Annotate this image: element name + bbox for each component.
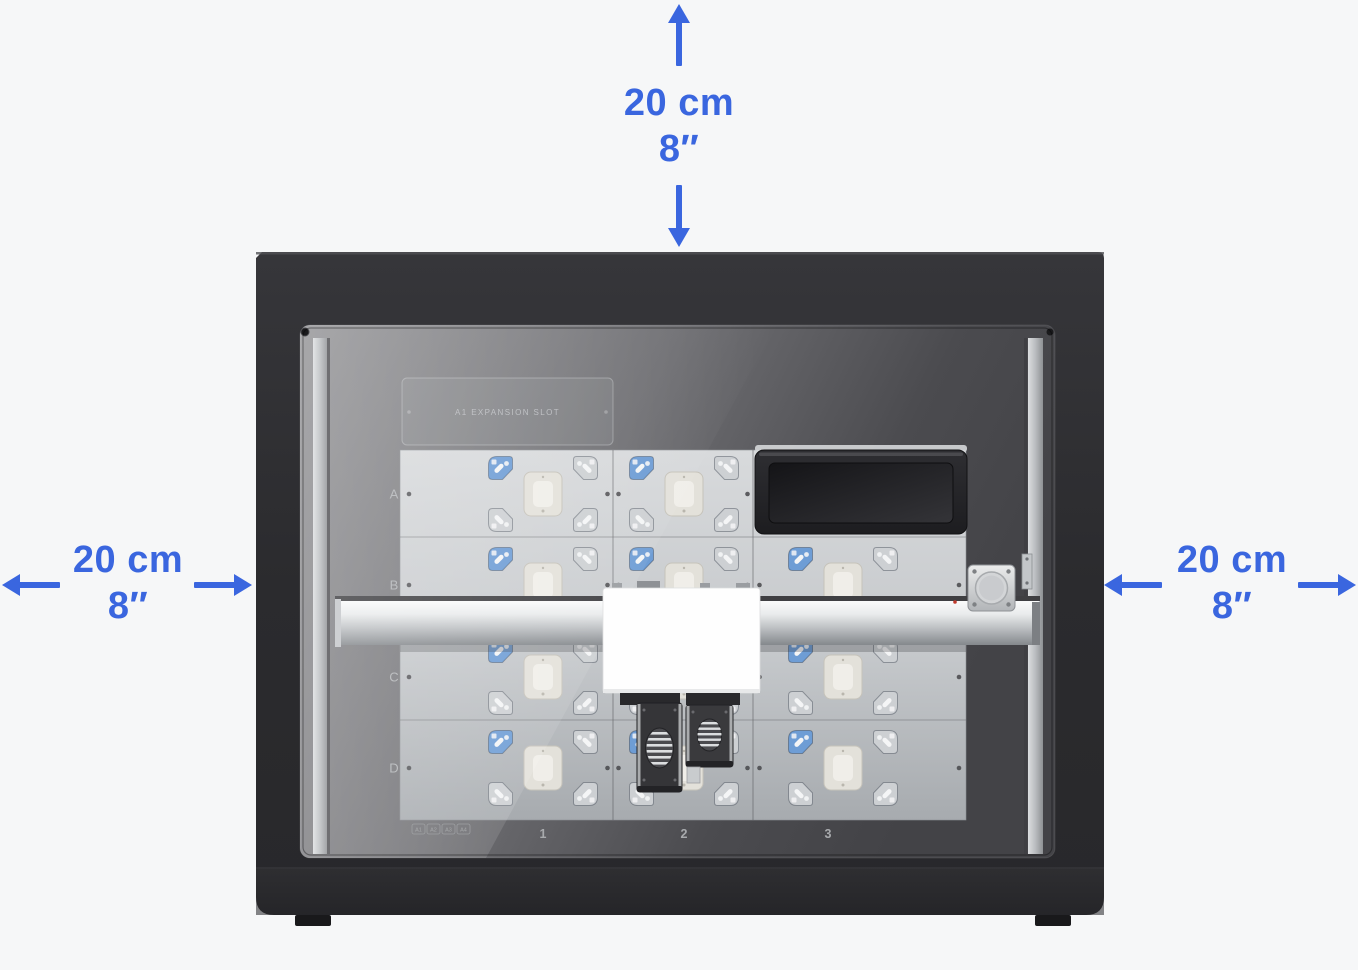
arrow-up-icon (668, 4, 690, 66)
clearance-top-imperial: 8″ (599, 126, 759, 172)
clearance-left-imperial: 8″ (48, 583, 208, 629)
clearance-top-metric: 20 cm (599, 80, 759, 126)
pipette-left (637, 703, 682, 792)
clearance-right-metric: 20 cm (1152, 537, 1312, 583)
arrow-right-icon (194, 574, 252, 596)
deck-column-label: 2 (681, 827, 688, 841)
clearance-right-imperial: 8″ (1152, 583, 1312, 629)
arrow-right-icon (1298, 574, 1356, 596)
clearance-diagram: 20 cm 8″ 20 cm 8″ 20 cm 8″ (0, 0, 1358, 970)
pipette-bracket (687, 767, 700, 783)
deck-column-label: 3 (825, 827, 832, 841)
machine-foot-right (1035, 915, 1071, 926)
clearance-top-label: 20 cm 8″ (599, 80, 759, 172)
deck-column-label: 1 (540, 827, 547, 841)
clearance-left-label: 20 cm 8″ (48, 537, 208, 629)
clearance-right-label: 20 cm 8″ (1152, 537, 1312, 629)
arrow-down-icon (668, 185, 690, 247)
glass-panel: A1 EXPANSION SLOT (300, 325, 1055, 858)
machine-illustration: A1 EXPANSION SLOT (256, 252, 1104, 927)
clearance-left-metric: 20 cm (48, 537, 208, 583)
machine-foot-left (295, 915, 331, 926)
trash-bin (755, 445, 967, 534)
